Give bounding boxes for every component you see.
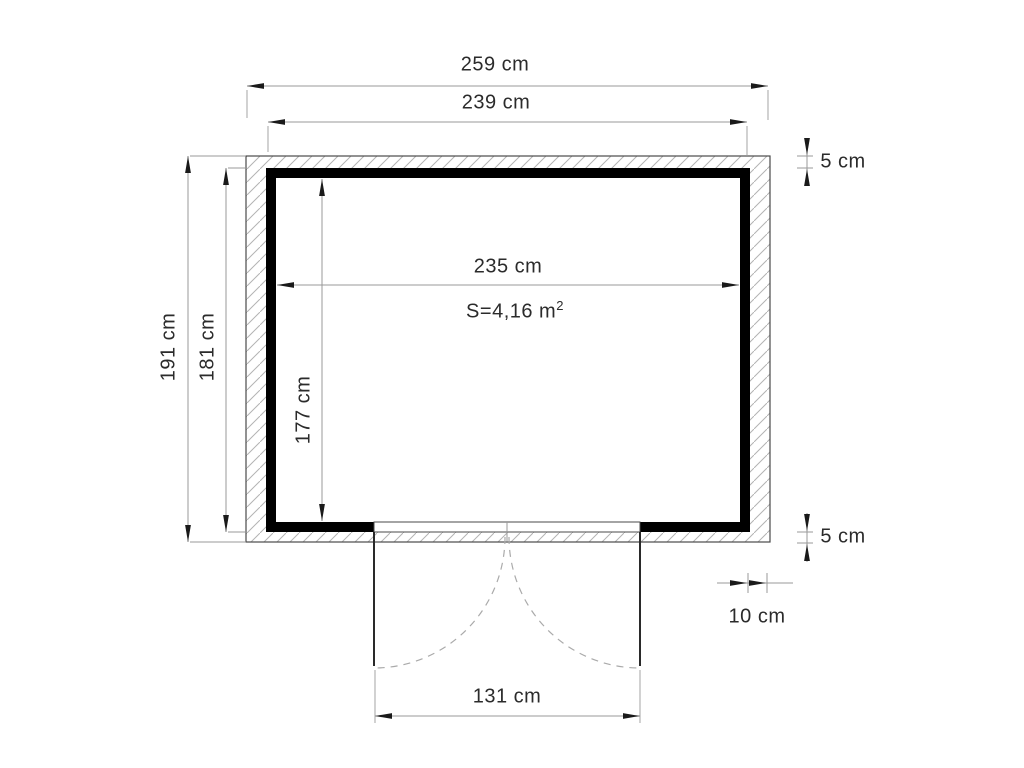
door	[374, 522, 640, 668]
dim-wall-bottom-5cm	[797, 513, 813, 562]
label-floor-area-base: S=4,16 m	[466, 301, 556, 323]
dim-cladding-10cm	[717, 573, 793, 593]
label-frame-depth: 181 cm	[197, 313, 220, 382]
label-cladding-thickness: 10 cm	[729, 606, 786, 629]
extension-lines	[190, 90, 768, 723]
label-wall-bottom-thickness: 5 cm	[820, 526, 865, 549]
dim-wall-top-5cm	[797, 138, 813, 186]
door-swing-arcs	[374, 537, 640, 668]
label-door-width: 131 cm	[473, 686, 542, 709]
label-outer-width: 259 cm	[461, 54, 530, 77]
label-floor-area-exponent: 2	[556, 298, 564, 313]
wall-inner-solid	[266, 168, 750, 532]
label-outer-depth: 191 cm	[158, 313, 181, 382]
label-floor-area: S=4,16 m2	[466, 301, 564, 324]
label-interior-width: 235 cm	[474, 256, 543, 279]
label-interior-depth: 177 cm	[293, 376, 316, 445]
wall-cladding-hatch	[246, 156, 770, 542]
label-frame-width: 239 cm	[462, 92, 531, 115]
floor-plan-canvas: 259 cm 239 cm 235 cm S=4,16 m2 191 cm 18…	[0, 0, 1024, 768]
label-wall-top-thickness: 5 cm	[820, 151, 865, 174]
floor-plan-drawing	[0, 0, 1024, 768]
